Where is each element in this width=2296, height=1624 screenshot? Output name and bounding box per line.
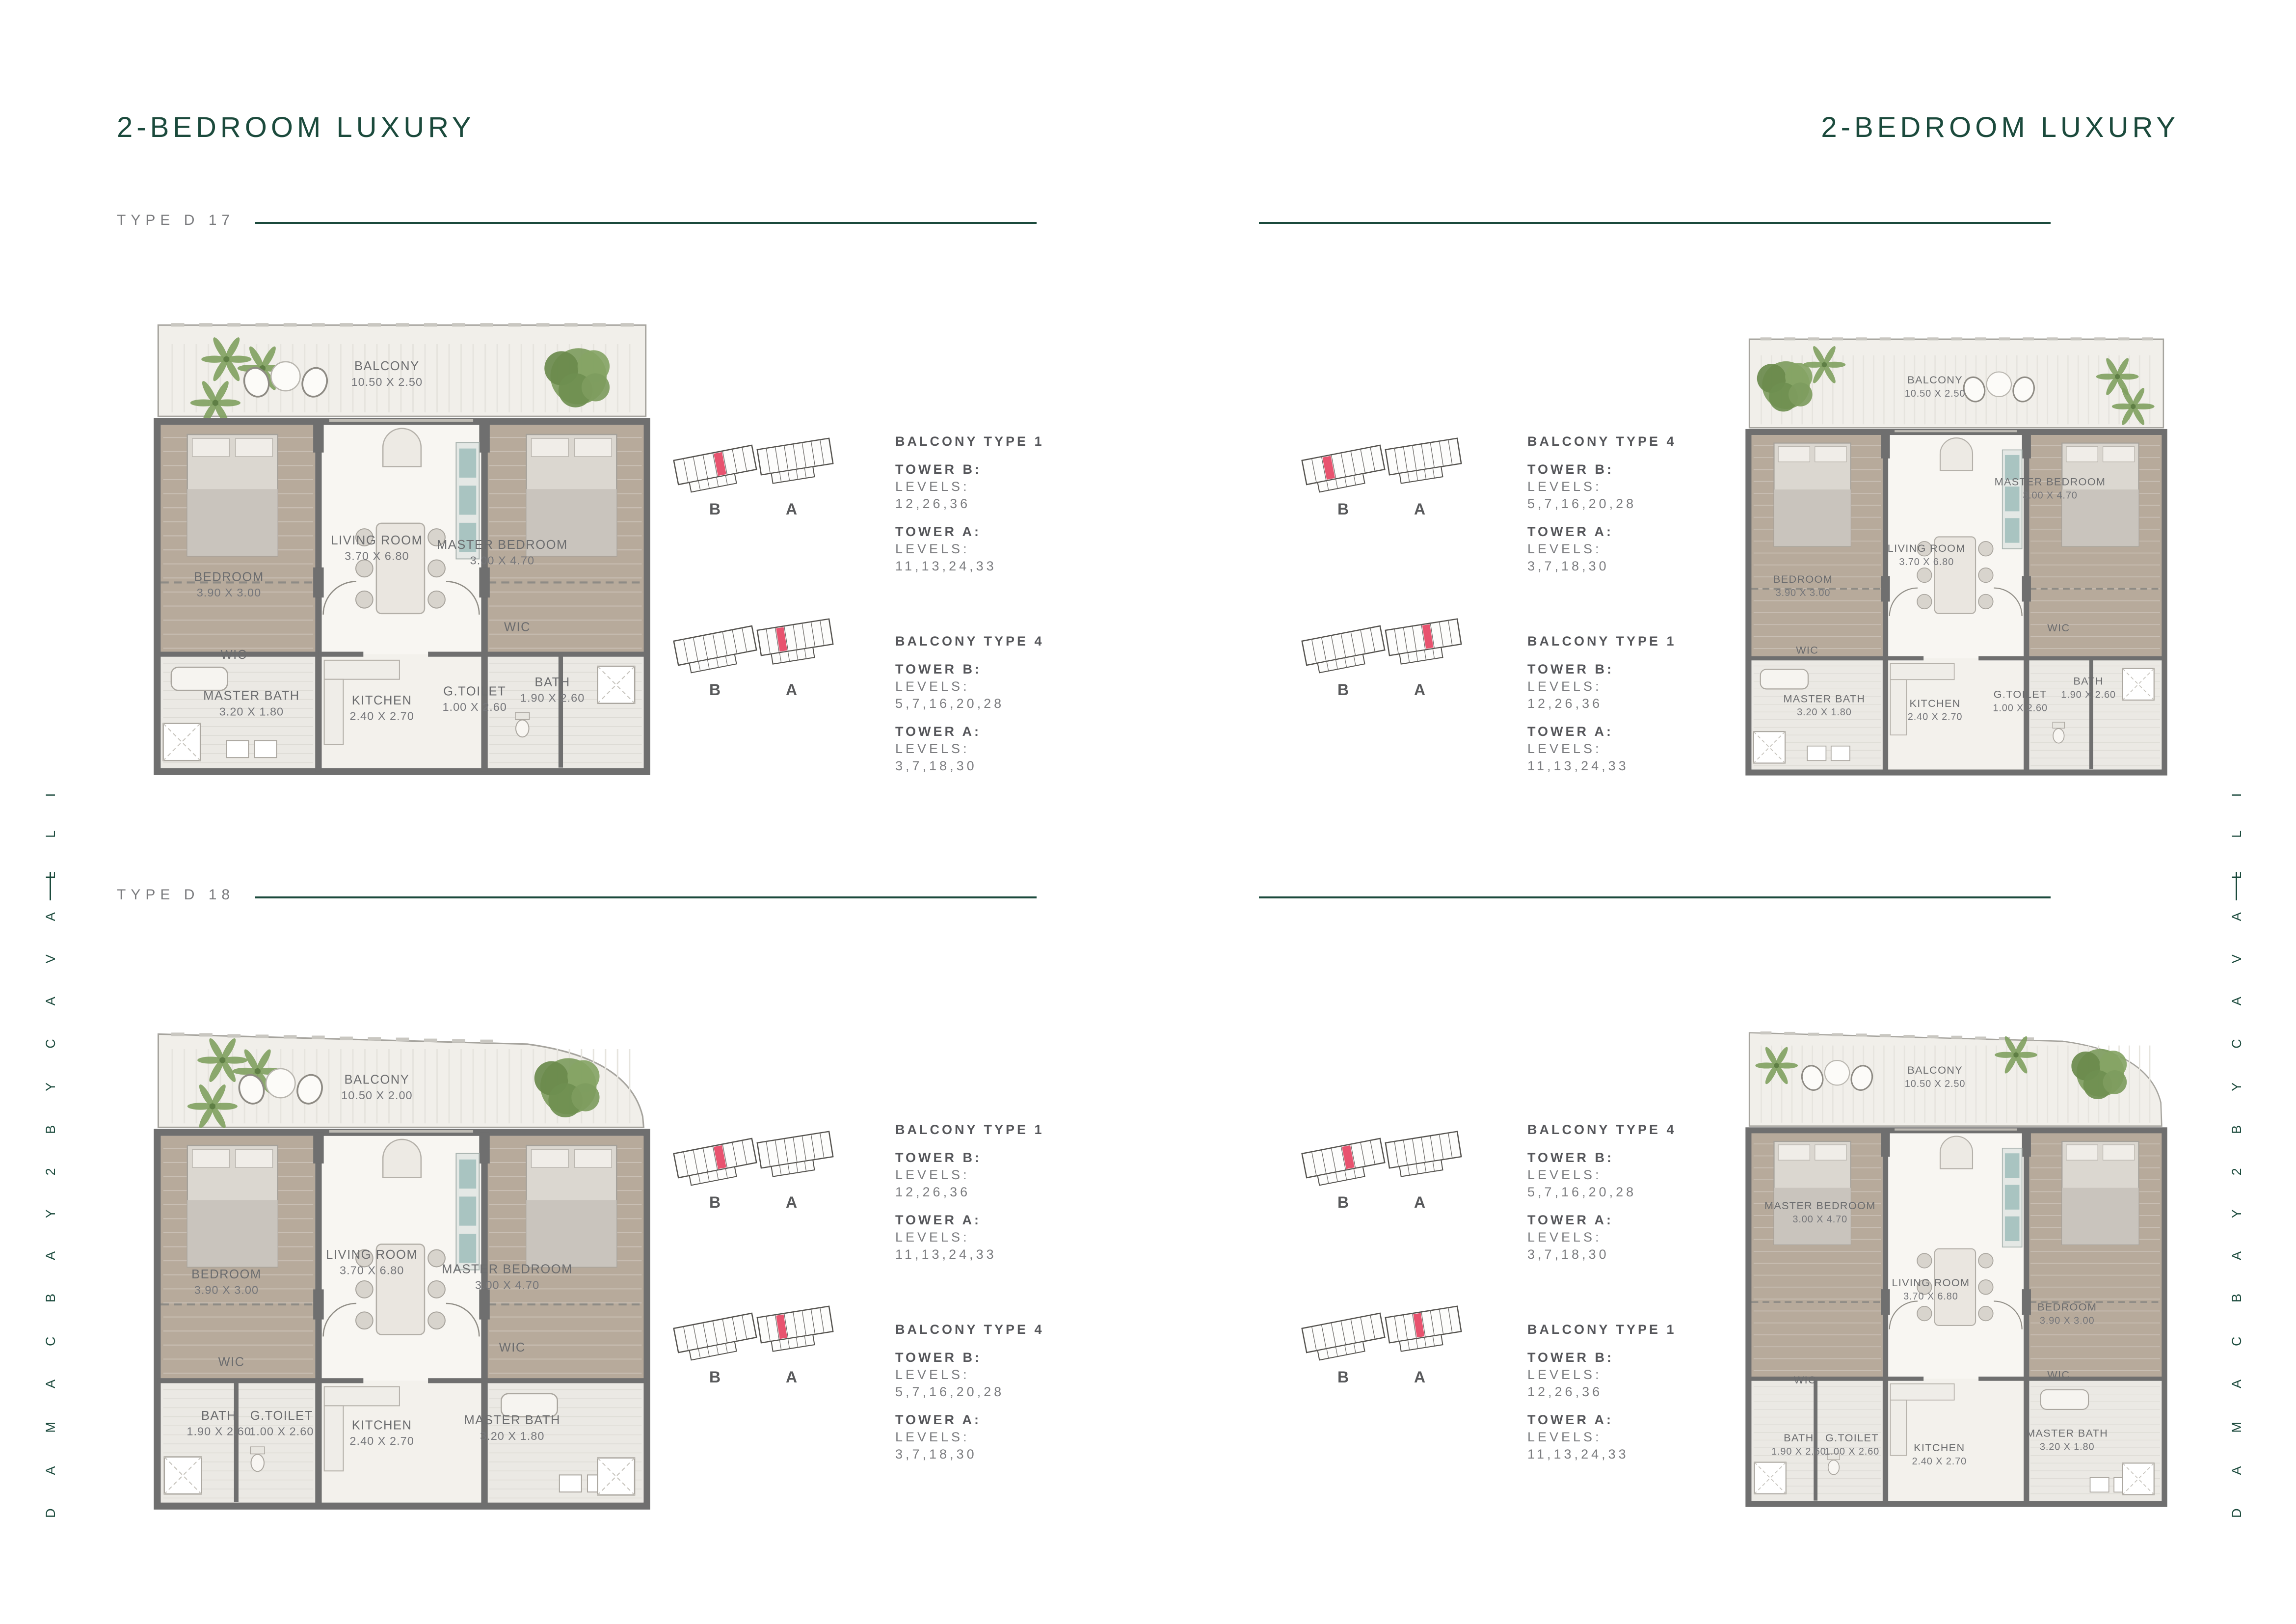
room-dims: 1.90 X 2.60 [520,692,585,704]
room-dims: 10.50 X 2.50 [351,376,423,388]
bed-icon [2062,1141,2138,1245]
levels-label: LEVELS: [895,478,1180,495]
type-label-d18: TYPE D 18 [117,887,235,903]
levels-label: LEVELS: [1527,740,1812,758]
balcony-type-title: BALCONY TYPE 4 [1527,433,1812,450]
tower-b-label: B [709,500,722,518]
levels-label: LEVELS: [895,678,1180,695]
levels-values: 11,13,24,33 [895,1246,1180,1263]
info-group: BALCONY TYPE 1TOWER B:LEVELS:12,26,36TOW… [895,433,1180,575]
key-plan-d17-1: BA [668,432,835,524]
room-label: MASTER BATH [203,689,300,703]
info-group: BALCONY TYPE 4TOWER B:LEVELS:5,7,16,20,2… [1527,1121,1812,1263]
levels-label: LEVELS: [895,1429,1180,1446]
levels-label: LEVELS: [1527,1429,1812,1446]
bathtub-icon [2041,1390,2088,1409]
balcony-type-title: BALCONY TYPE 1 [1527,1321,1812,1338]
levels-values: 3,7,18,30 [895,758,1180,775]
tower-heading: TOWER B: [1527,461,1812,478]
tower-heading: TOWER B: [895,461,1180,478]
balcony-type-title: BALCONY TYPE 1 [1527,633,1812,650]
shower-icon [598,666,635,704]
tower-heading: TOWER A: [895,723,1180,740]
tower-a-label: A [1414,500,1427,518]
levels-label: LEVELS: [1527,541,1812,558]
room-dims: 3.90 X 3.00 [2040,1315,2095,1326]
key-plan-d20-1: BA [1297,1125,1464,1217]
tower-heading: TOWER A: [1527,1411,1812,1429]
levels-label: LEVELS: [1527,478,1812,495]
bathtub-icon [171,667,227,690]
room-dims: 10.50 X 2.50 [1905,388,1966,399]
levels-values: 5,7,16,20,28 [895,695,1180,712]
type-label-d17: TYPE D 17 [117,212,235,229]
levels-label: LEVELS: [1527,1366,1812,1383]
levels-values: 5,7,16,20,28 [1527,1184,1812,1201]
info-group: BALCONY TYPE 1TOWER B:LEVELS:12,26,36TOW… [1527,633,1812,775]
room-dims: 3.90 X 3.00 [197,586,261,599]
levels-values: 5,7,16,20,28 [1527,495,1812,513]
room-dims: 3.70 X 6.80 [1903,1291,1958,1302]
key-plan: BA [1297,1300,1464,1389]
room-label: WIC [221,648,247,662]
room-label: WIC [2047,1369,2070,1381]
key-plan: BA [668,1300,835,1389]
floor-plan-wrap-d17: BALCONY10.50 X 2.50BEDROOM3.90 X 3.00LIV… [151,320,653,780]
bed-icon [187,434,278,556]
key-plan: BA [668,613,835,702]
tower-heading: TOWER B: [895,661,1180,678]
levels-label: LEVELS: [895,740,1180,758]
levels-label: LEVELS: [895,541,1180,558]
sofa-icon [2002,450,2022,548]
tower-b-label: B [1337,681,1350,699]
room-label: LIVING ROOM [1888,542,1966,554]
key-plan: BA [1297,1125,1464,1215]
room-dims: 2.40 X 2.70 [1908,712,1963,723]
balcony-info-d19: BALCONY TYPE 4TOWER B:LEVELS:5,7,16,20,2… [1527,433,1812,833]
room-label: BALCONY [345,1073,410,1087]
tower-heading: TOWER B: [1527,1349,1812,1366]
key-plan: BA [668,432,835,521]
room-dims: 2.40 X 2.70 [349,1435,414,1447]
balcony-type-title: BALCONY TYPE 1 [895,1121,1180,1138]
room-dims: 10.50 X 2.50 [1905,1079,1966,1089]
room-dims: 3.20 X 1.80 [219,705,284,718]
arch-niche-icon [383,429,421,467]
shower-icon [163,724,201,761]
room-dims: 10.50 X 2.00 [341,1089,412,1102]
room-dims: 2.40 X 2.70 [1912,1456,1967,1467]
type-rule-d18 [255,896,1037,898]
room-label: BEDROOM [191,1268,262,1281]
key-plan-d17-2: BA [668,613,835,704]
key-plan-d19-2: BA [1297,613,1464,704]
levels-values: 5,7,16,20,28 [895,1383,1180,1401]
tower-a-label: A [1414,1368,1427,1386]
tower-b-label: B [1337,500,1350,518]
balcony-type-title: BALCONY TYPE 4 [1527,1121,1812,1138]
levels-values: 11,13,24,33 [1527,1446,1812,1463]
sofa-icon [456,1154,479,1270]
room-dims: 2.40 X 2.70 [349,709,414,722]
type-rule-d19 [1259,222,2051,224]
toilet-icon [515,712,530,737]
room-dims: 3.70 X 6.80 [345,549,409,562]
room-dims: 3.00 X 4.70 [470,554,534,567]
bed-icon [526,1145,616,1267]
tower-a-label: A [786,1193,799,1211]
tower-b-label: B [709,1193,722,1211]
room-dims: 3.20 X 1.80 [480,1430,544,1442]
room-label: G.TOILET [250,1409,313,1423]
room-dims: 3.00 X 4.70 [2023,490,2078,501]
room-label: BEDROOM [2037,1301,2097,1313]
key-plan-d18-1: BA [668,1125,835,1217]
brand-vertical-right: D A M A C B A Y 2 B Y C A V A L L I [2229,909,2244,1518]
info-group: BALCONY TYPE 4TOWER B:LEVELS:5,7,16,20,2… [895,1321,1180,1463]
room-label: BALCONY [354,359,420,373]
tower-heading: TOWER B: [895,1149,1180,1166]
room-label: MASTER BATH [464,1413,561,1427]
levels-values: 12,26,36 [1527,1383,1812,1401]
room-dims: 3.90 X 3.00 [194,1284,259,1297]
levels-values: 3,7,18,30 [895,1446,1180,1463]
shower-icon [2123,669,2154,700]
room-label: WIC [499,1341,526,1354]
room-dims: 3.00 X 4.70 [475,1278,539,1291]
room-label: WIC [218,1355,245,1369]
levels-label: LEVELS: [1527,1166,1812,1184]
room-label: LIVING ROOM [326,1248,418,1262]
room-dims: 3.70 X 6.80 [1899,557,1954,568]
tower-heading: TOWER A: [1527,1212,1812,1229]
tower-heading: TOWER A: [1527,723,1812,740]
tower-a-label: A [786,1368,799,1386]
tower-a-label: A [1414,1193,1427,1211]
room-label: BATH [201,1409,237,1423]
room-dims: 1.00 X 2.60 [1825,1446,1880,1457]
key-plan: BA [668,1125,835,1215]
key-plan-d18-2: BA [668,1300,835,1392]
tower-heading: TOWER B: [1527,661,1812,678]
toilet-icon [2053,722,2064,743]
shower-icon [2123,1463,2154,1494]
tower-heading: TOWER A: [895,1212,1180,1229]
room-label: G.TOILET [443,684,506,698]
floor-plan-d18: BALCONY10.50 X 2.00BEDROOM3.90 X 3.00LIV… [151,1025,653,1512]
balcony-type-title: BALCONY TYPE 4 [895,1321,1180,1338]
balcony-type-title: BALCONY TYPE 1 [895,433,1180,450]
info-group: BALCONY TYPE 1TOWER B:LEVELS:12,26,36TOW… [895,1121,1180,1263]
brand-vertical-left: D A M A C B A Y 2 B Y C A V A L L I [43,909,58,1518]
arch-niche-icon [383,1139,421,1178]
bed-icon [187,1145,278,1267]
balcony-info-d20: BALCONY TYPE 4TOWER B:LEVELS:5,7,16,20,2… [1527,1121,1812,1521]
levels-values: 11,13,24,33 [895,558,1180,575]
levels-label: LEVELS: [895,1229,1180,1246]
levels-label: LEVELS: [1527,678,1812,695]
room-label: G.TOILET [1825,1432,1879,1444]
balcony-info-d18: BALCONY TYPE 1TOWER B:LEVELS:12,26,36TOW… [895,1121,1180,1521]
page-title-right: 2-BEDROOM LUXURY [1821,111,2179,144]
type-rule-d17 [255,222,1037,224]
toilet-icon [250,1447,265,1471]
room-label: WIC [2047,622,2070,634]
room-label: BALCONY [1907,1064,1963,1076]
balcony-type-title: BALCONY TYPE 4 [895,633,1180,650]
room-dims: 1.90 X 2.60 [2061,690,2116,701]
info-group: BALCONY TYPE 4TOWER B:LEVELS:5,7,16,20,2… [1527,433,1812,575]
info-group: BALCONY TYPE 1TOWER B:LEVELS:12,26,36TOW… [1527,1321,1812,1463]
tower-heading: TOWER B: [895,1349,1180,1366]
key-plan-d20-2: BA [1297,1300,1464,1392]
sofa-icon [2002,1148,2022,1247]
key-plan: BA [1297,432,1464,521]
tower-heading: TOWER A: [895,523,1180,541]
room-label: BALCONY [1907,374,1963,386]
arch-niche-icon [1940,1137,1973,1169]
tower-heading: TOWER B: [1527,1149,1812,1166]
room-label: BATH [2073,675,2103,687]
room-label: G.TOILET [1994,688,2047,701]
room-label: MASTER BEDROOM [1995,475,2106,487]
key-plan: BA [1297,613,1464,702]
room-label: KITCHEN [1914,1441,1965,1454]
floor-plan-wrap-d18: BALCONY10.50 X 2.00BEDROOM3.90 X 3.00LIV… [151,1025,653,1515]
room-label: MASTER BATH [2026,1427,2108,1439]
tower-b-label: B [1337,1368,1350,1386]
type-rule-d20 [1259,896,2051,898]
balcony-info-d17: BALCONY TYPE 1TOWER B:LEVELS:12,26,36TOW… [895,433,1180,833]
room-label: MASTER BEDROOM [437,538,568,552]
levels-label: LEVELS: [1527,1229,1812,1246]
page-title-left: 2-BEDROOM LUXURY [117,111,475,144]
tower-b-label: B [709,1368,722,1386]
room-label: BEDROOM [194,570,264,584]
tower-b-label: B [709,681,722,699]
key-plan-d19-1: BA [1297,432,1464,524]
room-dims: 1.00 X 2.60 [1993,703,2048,714]
room-label: LIVING ROOM [1892,1276,1970,1289]
room-label: WIC [504,621,531,634]
arch-niche-icon [1940,438,1973,470]
levels-values: 12,26,36 [1527,695,1812,712]
room-label: KITCHEN [352,694,412,707]
levels-values: 12,26,36 [895,1184,1180,1201]
levels-values: 12,26,36 [895,495,1180,513]
room-label: BATH [534,676,570,689]
tower-heading: TOWER A: [1527,523,1812,541]
room-dims: 1.00 X 2.60 [249,1425,314,1438]
tower-b-label: B [1337,1193,1350,1211]
room-dims: 1.00 X 2.60 [442,701,507,713]
levels-label: LEVELS: [895,1166,1180,1184]
levels-values: 3,7,18,30 [1527,1246,1812,1263]
tower-a-label: A [786,681,799,699]
info-group: BALCONY TYPE 4TOWER B:LEVELS:5,7,16,20,2… [895,633,1180,775]
room-dims: 3.70 X 6.80 [340,1264,404,1277]
levels-values: 11,13,24,33 [1527,758,1812,775]
tower-a-label: A [1414,681,1427,699]
room-label: LIVING ROOM [331,534,423,547]
shower-icon [597,1458,635,1495]
levels-values: 3,7,18,30 [1527,558,1812,575]
tower-a-label: A [786,500,799,518]
room-label: KITCHEN [1909,697,1960,709]
levels-label: LEVELS: [895,1366,1180,1383]
room-label: MASTER BEDROOM [442,1263,573,1276]
room-label: KITCHEN [352,1418,412,1432]
shower-icon [164,1457,202,1494]
room-dims: 3.20 X 1.80 [2040,1441,2095,1452]
room-dims: 1.90 X 2.60 [187,1425,251,1438]
tower-heading: TOWER A: [895,1411,1180,1429]
floor-plan-d17: BALCONY10.50 X 2.50BEDROOM3.90 X 3.00LIV… [151,320,653,778]
